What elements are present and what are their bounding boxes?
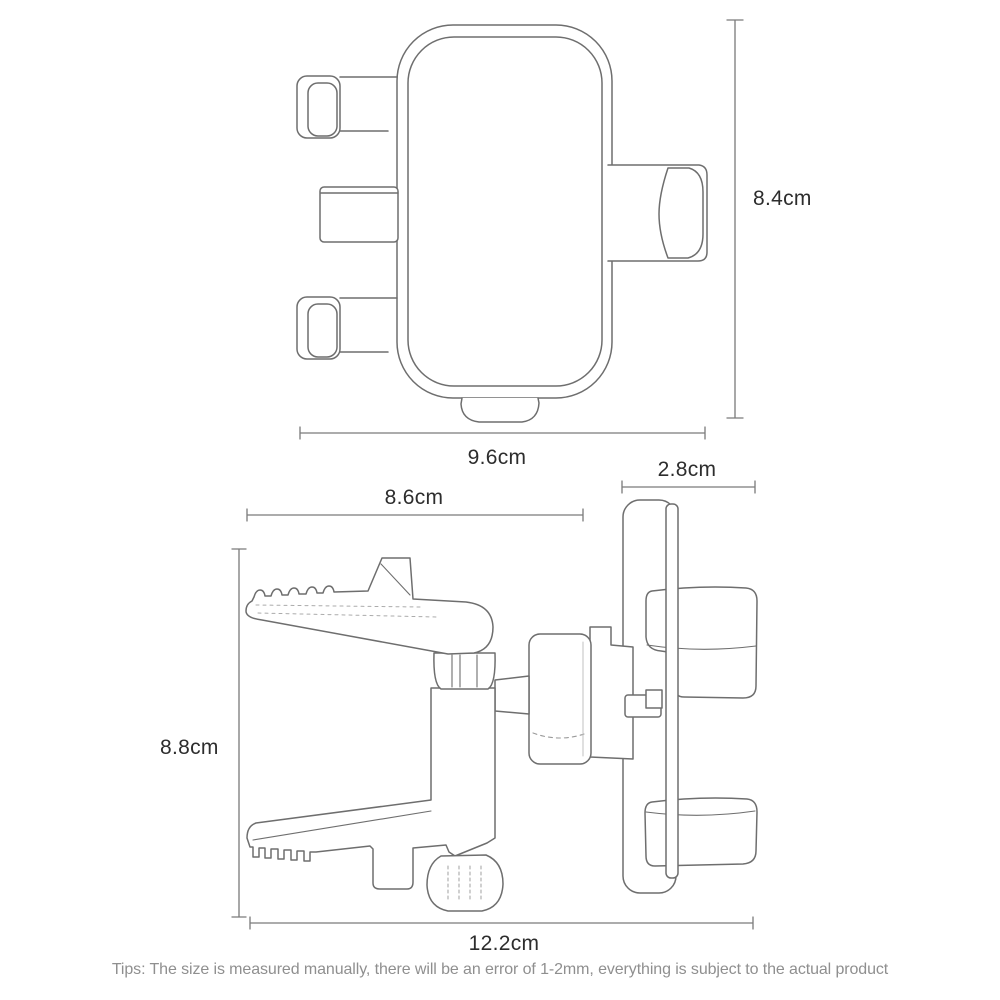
slide-bar (666, 504, 678, 878)
dimension-label-hook-depth: 2.8cm (658, 458, 717, 482)
right-grip-pad (659, 168, 703, 258)
product-dimension-diagram: 8.4cm 9.6cm 2.8cm 8.6cm 8.8cm 12.2cm Tip… (0, 0, 1000, 1000)
dim-line-side-width (250, 917, 753, 929)
left-lower-grip-arms (340, 298, 397, 352)
dimension-label-side-height: 8.8cm (160, 736, 219, 760)
joint-connector-arm (495, 676, 529, 714)
left-middle-arm (320, 187, 398, 242)
release-tab (461, 398, 539, 422)
dim-line-front-width (300, 427, 705, 439)
dimension-label-front-height: 8.4cm (753, 187, 812, 211)
side-view-drawing (246, 500, 757, 911)
dimension-label-side-width: 12.2cm (469, 932, 540, 956)
left-upper-grip-pad (308, 83, 337, 136)
ball-joint-housing (529, 634, 591, 764)
dimension-label-front-width: 9.6cm (468, 446, 527, 470)
dim-line-side-height (232, 549, 246, 917)
joint-bracket (590, 627, 633, 759)
pivot-hinge (434, 653, 495, 689)
left-lower-grip-pad (308, 304, 337, 357)
dim-line-clip-length (247, 509, 583, 521)
measurement-tips-text: Tips: The size is measured manually, the… (112, 961, 888, 979)
dimension-label-clip-length: 8.6cm (385, 486, 444, 510)
thumb-knob (427, 855, 503, 911)
dim-line-front-height (727, 20, 743, 418)
front-view-drawing (297, 25, 707, 422)
dim-line-hook-depth (622, 481, 755, 493)
lower-hook (645, 798, 757, 866)
upper-hook-step (646, 690, 662, 708)
diagram-canvas (0, 0, 1000, 1000)
clamp-outer-frame (397, 25, 612, 398)
left-upper-grip-arms (340, 77, 397, 131)
